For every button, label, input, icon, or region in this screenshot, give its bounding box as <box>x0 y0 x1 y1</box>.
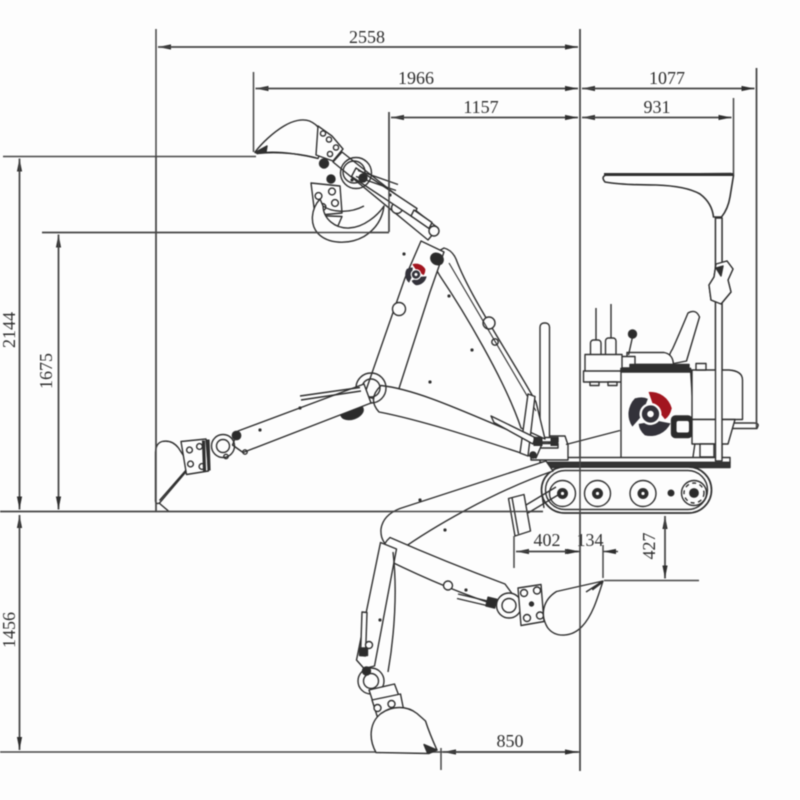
svg-text:427: 427 <box>639 533 659 560</box>
svg-text:1456: 1456 <box>0 612 19 648</box>
svg-text:1077: 1077 <box>649 68 685 88</box>
svg-text:850: 850 <box>497 731 524 751</box>
svg-text:2144: 2144 <box>0 312 19 348</box>
svg-text:1157: 1157 <box>463 97 498 117</box>
svg-text:1675: 1675 <box>36 353 56 389</box>
svg-text:2558: 2558 <box>349 27 385 47</box>
svg-text:402: 402 <box>534 530 561 550</box>
svg-text:931: 931 <box>644 97 671 117</box>
svg-text:1966: 1966 <box>398 68 434 88</box>
